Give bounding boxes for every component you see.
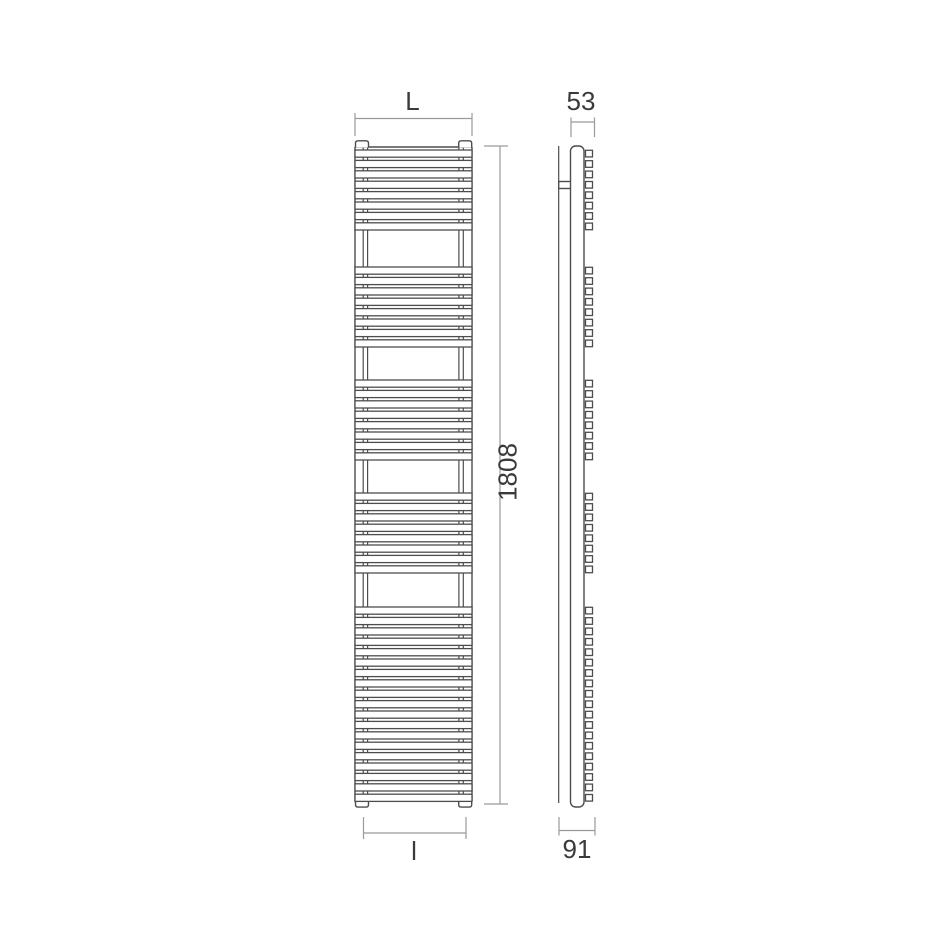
- side-tube-end: [586, 774, 593, 781]
- side-tube-end: [586, 525, 593, 532]
- front-flat-tube: [355, 535, 472, 542]
- side-tube-end: [586, 732, 593, 739]
- dimension-connection-width-bottom: l: [364, 817, 467, 866]
- side-tube-end: [586, 391, 593, 398]
- side-tube-end: [586, 330, 593, 337]
- side-tube-end: [586, 566, 593, 573]
- front-flat-tube: [355, 340, 472, 347]
- side-tube-end: [586, 299, 593, 306]
- front-flat-tube: [355, 753, 472, 760]
- side-tube-end: [586, 432, 593, 439]
- side-tube-end: [586, 213, 593, 220]
- front-flat-tube: [355, 319, 472, 326]
- side-tube-end: [586, 545, 593, 552]
- side-tube-end: [586, 649, 593, 656]
- front-flat-tube: [355, 721, 472, 728]
- side-tube-end: [586, 171, 593, 178]
- drawing-page: L 53 1808 l 91: [0, 0, 950, 950]
- front-flat-tube: [355, 277, 472, 284]
- front-flat-tube: [355, 690, 472, 697]
- side-tube-end: [586, 401, 593, 408]
- dimension-depth-bottom: 91: [559, 817, 595, 864]
- front-tube-rows: [355, 150, 472, 801]
- front-flat-tube: [355, 784, 472, 791]
- front-flat-tube: [355, 192, 472, 199]
- front-flat-tube: [355, 794, 472, 801]
- side-tube-end: [586, 535, 593, 542]
- front-flat-tube: [355, 309, 472, 316]
- side-tube-end: [586, 504, 593, 511]
- side-collector-tube: [571, 146, 585, 807]
- front-flat-tube: [355, 442, 472, 449]
- front-flat-tube: [355, 773, 472, 780]
- side-tube-end: [586, 659, 593, 666]
- front-flat-tube: [355, 181, 472, 188]
- side-tube-end: [586, 422, 593, 429]
- side-tube-end: [586, 763, 593, 770]
- front-flat-tube: [355, 493, 472, 500]
- front-flat-tube: [355, 390, 472, 397]
- dimension-label-91: 91: [563, 834, 592, 864]
- dimension-label-L: L: [405, 86, 419, 116]
- front-flat-tube: [355, 680, 472, 687]
- side-view: [559, 146, 593, 807]
- side-tube-end: [586, 618, 593, 625]
- side-tube-end: [586, 161, 593, 168]
- front-flat-tube: [355, 422, 472, 429]
- side-tube-end: [586, 670, 593, 677]
- side-tube-end-rows: [586, 150, 593, 801]
- side-tube-end: [586, 691, 593, 698]
- front-flat-tube: [355, 267, 472, 274]
- front-flat-tube: [355, 288, 472, 295]
- front-flat-tube: [355, 171, 472, 178]
- side-tube-end: [586, 556, 593, 563]
- front-flat-tube: [355, 524, 472, 531]
- front-flat-tube: [355, 638, 472, 645]
- front-flat-tube: [355, 329, 472, 336]
- front-flat-tube: [355, 160, 472, 167]
- side-tube-end: [586, 340, 593, 347]
- front-flat-tube: [355, 514, 472, 521]
- front-flat-tube: [355, 711, 472, 718]
- front-flat-tube: [355, 545, 472, 552]
- front-flat-tube: [355, 150, 472, 157]
- side-tube-end: [586, 453, 593, 460]
- front-flat-tube: [355, 223, 472, 230]
- side-tube-end: [586, 309, 593, 316]
- side-tube-end: [586, 319, 593, 326]
- side-tube-end: [586, 223, 593, 230]
- side-tube-end: [586, 743, 593, 750]
- side-tube-end: [586, 628, 593, 635]
- side-tube-end: [586, 784, 593, 791]
- dimension-overall-height: 1808: [484, 146, 523, 804]
- wall-bracket: [559, 182, 571, 189]
- top-left-cap: [356, 141, 369, 148]
- front-flat-tube: [355, 401, 472, 408]
- dimension-label-53: 53: [567, 86, 596, 116]
- side-tube-end: [586, 493, 593, 500]
- side-tube-end: [586, 514, 593, 521]
- dimension-depth-top: 53: [567, 86, 596, 137]
- side-tube-end: [586, 639, 593, 646]
- front-flat-tube: [355, 453, 472, 460]
- side-tube-end: [586, 680, 593, 687]
- side-tube-end: [586, 192, 593, 199]
- side-tube-end: [586, 722, 593, 729]
- front-flat-tube: [355, 649, 472, 656]
- front-flat-tube: [355, 607, 472, 614]
- dimension-overall-width-top: L: [355, 86, 472, 136]
- side-tube-end: [586, 380, 593, 387]
- front-flat-tube: [355, 763, 472, 770]
- side-tube-end: [586, 711, 593, 718]
- front-flat-tube: [355, 555, 472, 562]
- front-flat-tube: [355, 617, 472, 624]
- radiator-technical-drawing: L 53 1808 l 91: [0, 0, 950, 950]
- side-tube-end: [586, 412, 593, 419]
- front-flat-tube: [355, 202, 472, 209]
- dimension-label-1808: 1808: [493, 443, 523, 501]
- front-flat-tube: [355, 701, 472, 708]
- side-tube-end: [586, 202, 593, 209]
- side-tube-end: [586, 607, 593, 614]
- front-flat-tube: [355, 380, 472, 387]
- front-flat-tube: [355, 628, 472, 635]
- front-flat-tube: [355, 432, 472, 439]
- top-right-cap: [459, 141, 472, 148]
- side-tube-end: [586, 701, 593, 708]
- dimension-label-l: l: [411, 836, 417, 866]
- side-tube-end: [586, 182, 593, 189]
- front-flat-tube: [355, 298, 472, 305]
- front-flat-tube: [355, 659, 472, 666]
- front-flat-tube: [355, 566, 472, 573]
- side-tube-end: [586, 278, 593, 285]
- side-tube-end: [586, 443, 593, 450]
- front-flat-tube: [355, 503, 472, 510]
- front-flat-tube: [355, 742, 472, 749]
- side-tube-end: [586, 753, 593, 760]
- front-flat-tube: [355, 732, 472, 739]
- side-tube-end: [586, 150, 593, 157]
- front-flat-tube: [355, 411, 472, 418]
- front-flat-tube: [355, 212, 472, 219]
- side-tube-end: [586, 288, 593, 295]
- front-flat-tube: [355, 669, 472, 676]
- front-view: [355, 141, 472, 807]
- side-tube-end: [586, 267, 593, 274]
- side-tube-end: [586, 795, 593, 802]
